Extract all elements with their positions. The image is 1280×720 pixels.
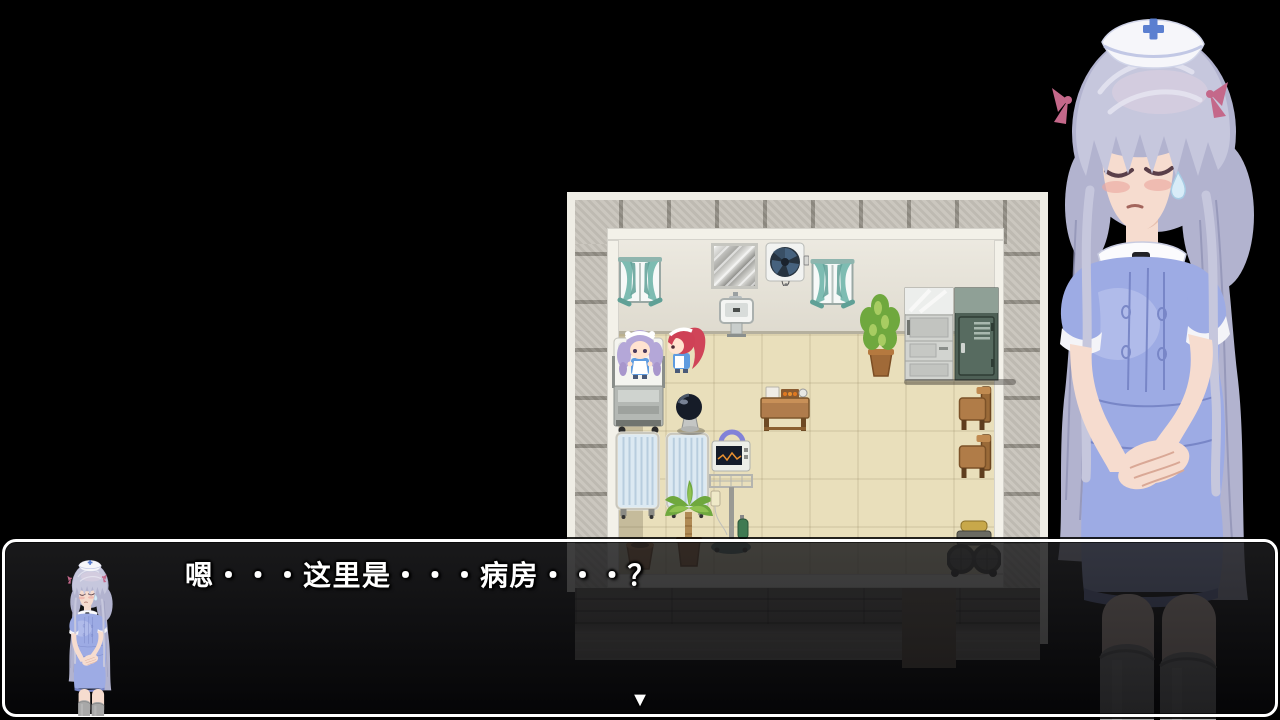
wall-tiles-right <box>1004 244 1040 588</box>
ventilation-fan <box>765 242 809 286</box>
window-right <box>809 258 856 310</box>
wooden-desk <box>760 385 810 432</box>
wall-mirror <box>711 243 758 289</box>
map-outer-frame-left <box>567 200 575 592</box>
dialogue-face-portrait <box>25 556 167 716</box>
dialogue-text: 嗯・・・这里是・・・病房・・・？ <box>185 558 1185 594</box>
locker <box>954 287 999 381</box>
game-screen: 嗯・・・这里是・・・病房・・・？ ▼ <box>0 0 1280 720</box>
continue-arrow-icon[interactable]: ▼ <box>630 690 650 710</box>
wall-sink <box>719 292 755 338</box>
map-outer-frame-top <box>567 192 1048 200</box>
potted-plant <box>857 292 903 382</box>
privacy-screen-left <box>612 431 663 519</box>
chair-bottom <box>955 434 996 480</box>
window-left <box>617 256 663 308</box>
room-border-top <box>607 228 1004 240</box>
refrigerator <box>904 287 954 381</box>
chair-top <box>955 386 996 432</box>
round-stool <box>671 392 708 435</box>
character-maid-red[interactable] <box>662 323 708 379</box>
furniture-shadow <box>904 379 1016 385</box>
character-maid-purple[interactable] <box>617 325 663 383</box>
dialogue-box[interactable]: 嗯・・・这里是・・・病房・・・？ ▼ <box>2 539 1278 717</box>
medical-monitor-cart <box>705 429 758 555</box>
